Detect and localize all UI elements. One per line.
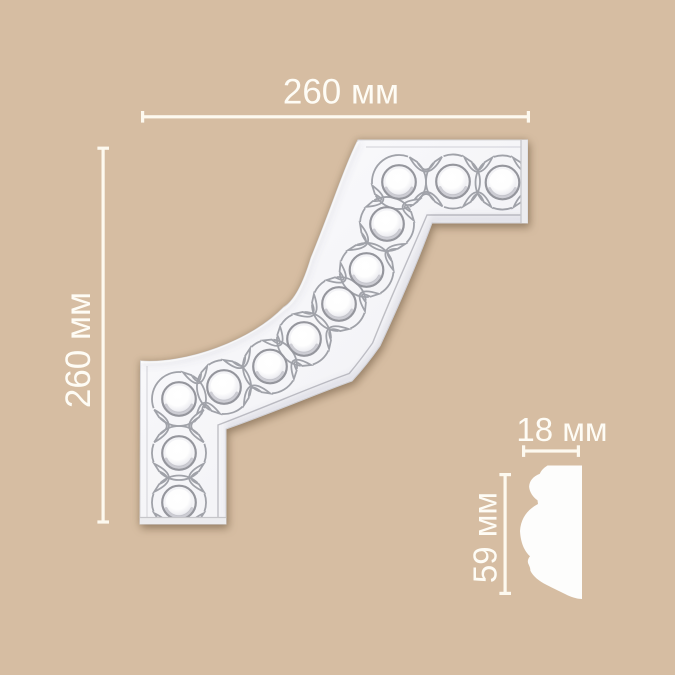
svg-text:18 мм: 18 мм — [516, 411, 607, 448]
svg-text:260 мм: 260 мм — [59, 292, 98, 408]
svg-text:260 мм: 260 мм — [283, 73, 399, 112]
svg-text:59 мм: 59 мм — [467, 492, 504, 583]
